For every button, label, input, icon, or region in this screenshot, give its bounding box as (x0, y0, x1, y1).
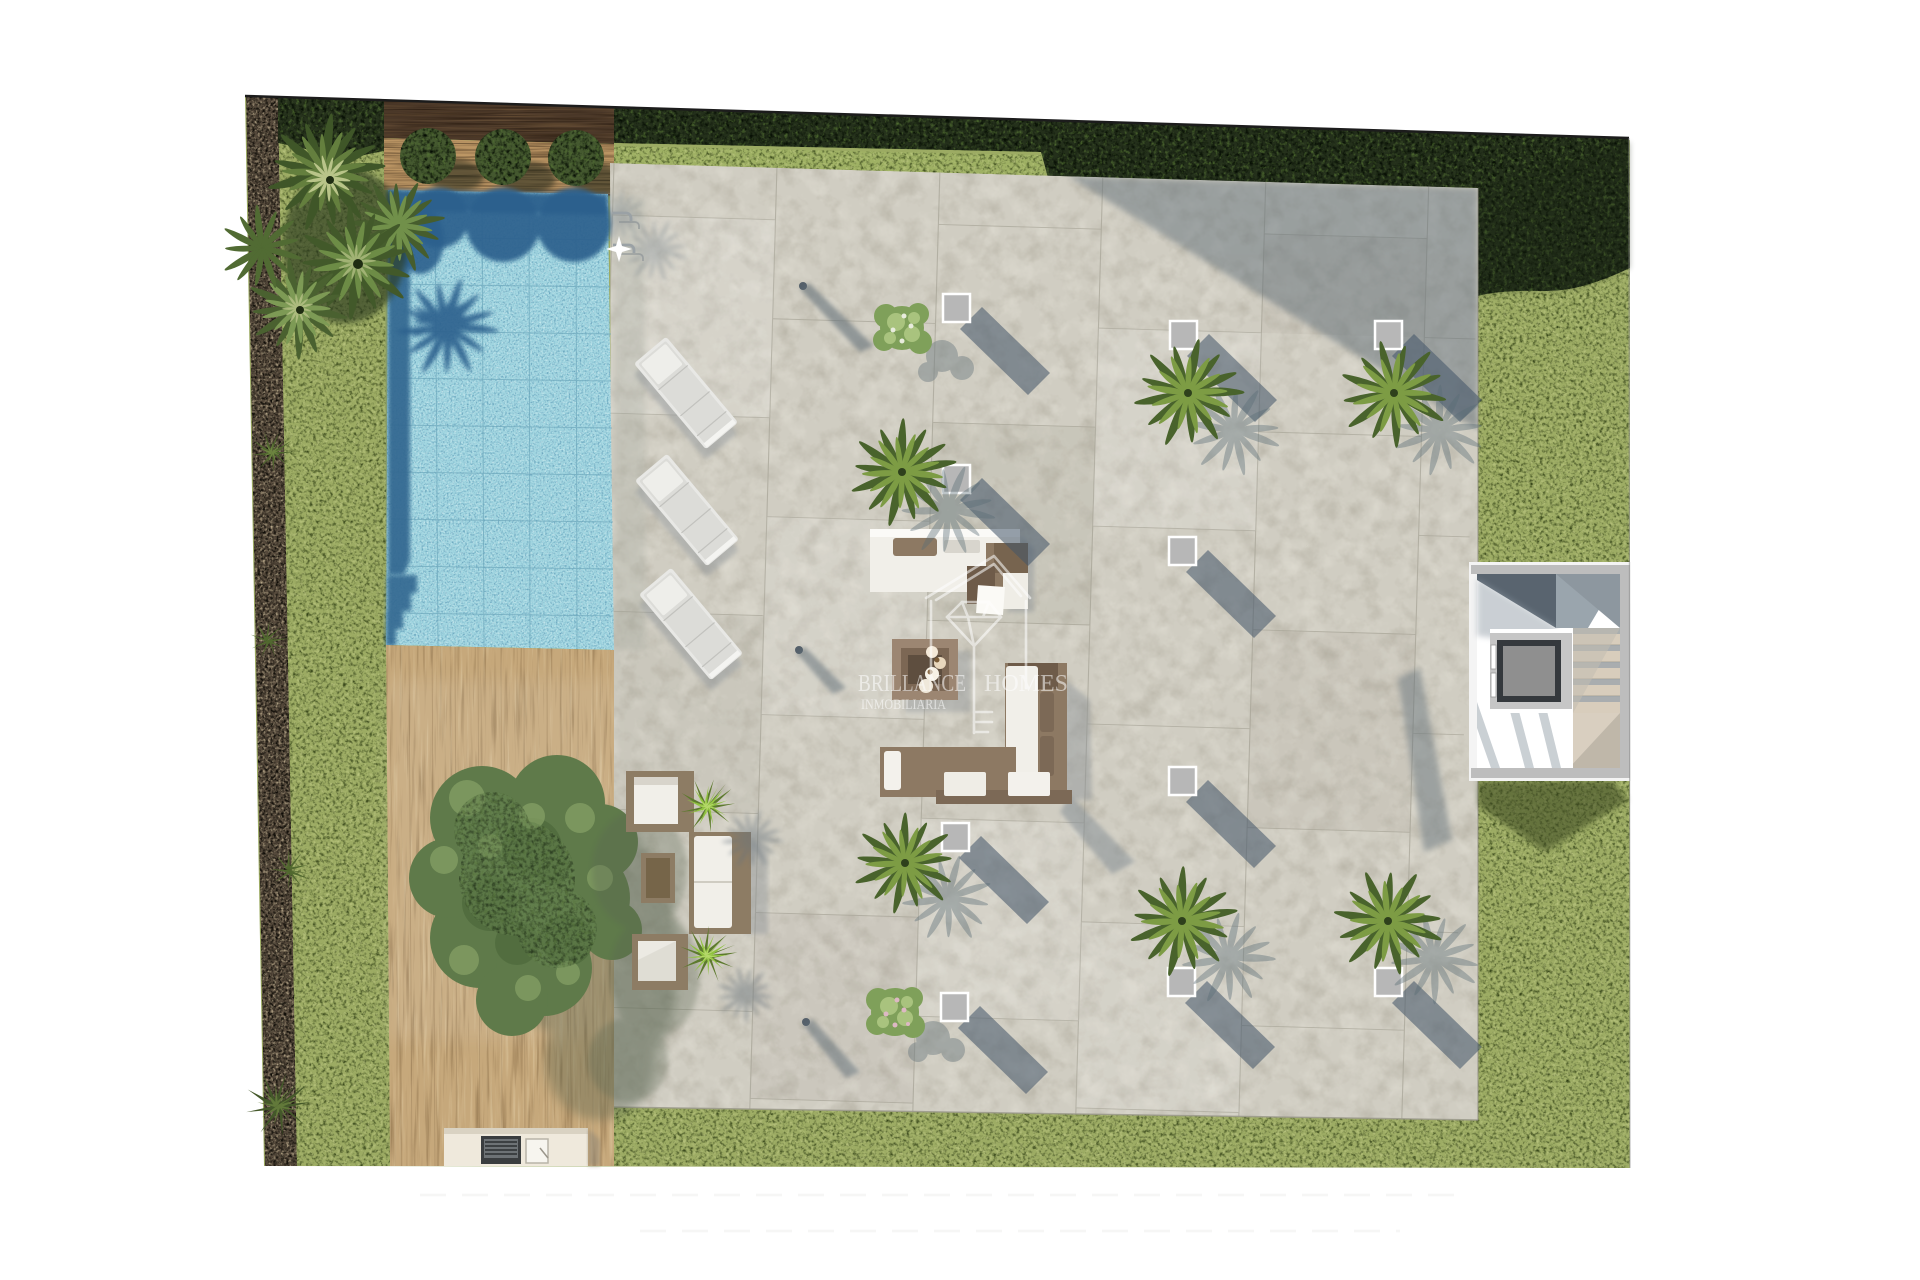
svg-text:BRILLANCE: BRILLANCE (858, 671, 966, 697)
svg-text:INMOBILIARIA: INMOBILIARIA (861, 697, 946, 713)
svg-text:HOMES: HOMES (984, 671, 1068, 697)
